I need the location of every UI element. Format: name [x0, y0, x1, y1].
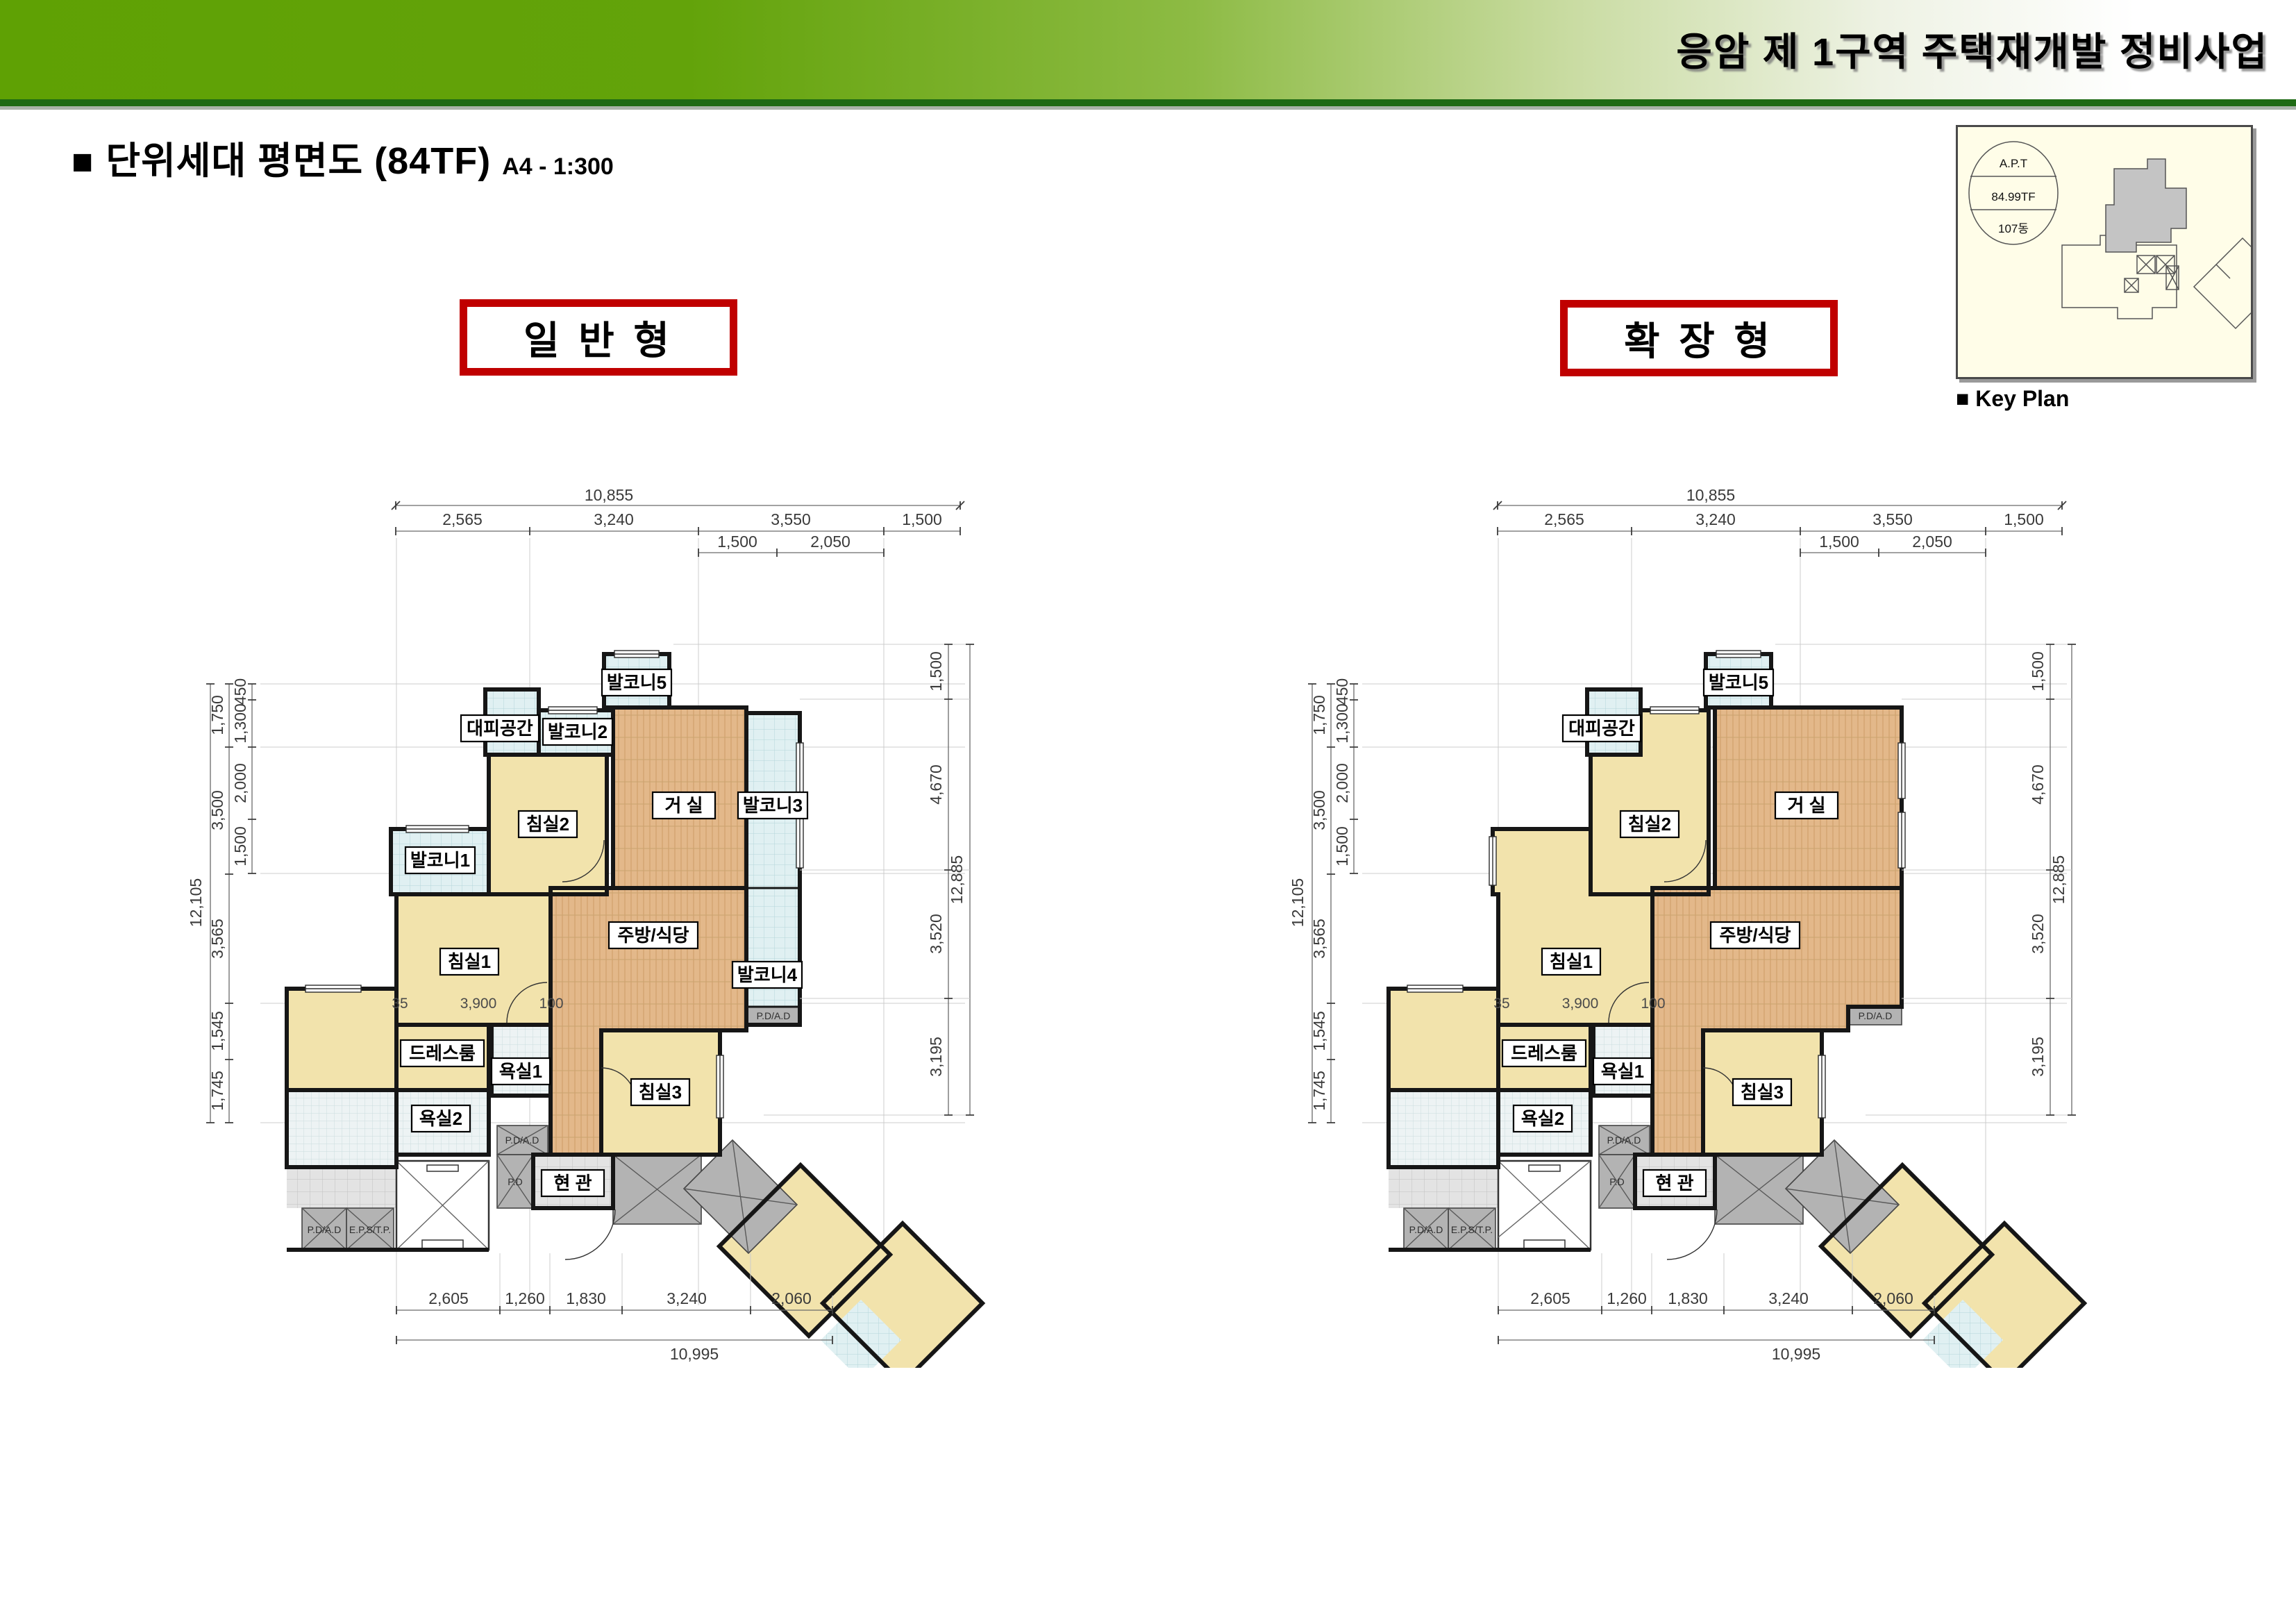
svg-text:1,260: 1,260	[1607, 1289, 1647, 1307]
key-plan-building-footprint	[2062, 159, 2251, 328]
svg-text:10,995: 10,995	[1772, 1345, 1820, 1363]
label-entry: 현 관	[1643, 1170, 1706, 1196]
type-label-extended: 확 장 형	[1560, 300, 1838, 376]
svg-text:3,520: 3,520	[2029, 914, 2047, 954]
svg-text:주방/식당: 주방/식당	[1720, 925, 1791, 946]
svg-text:1,260: 1,260	[505, 1289, 545, 1307]
room-fills	[1389, 654, 2084, 1368]
svg-text:E.P.S/T.P.: E.P.S/T.P.	[349, 1224, 391, 1235]
svg-text:1,300: 1,300	[1333, 703, 1351, 744]
type-label-standard: 일 반 형	[460, 299, 737, 376]
dimension-left: 12,105 1,750 3,500 3,565 1,545 1,745 450…	[187, 678, 256, 1123]
svg-text:10,855: 10,855	[585, 486, 633, 504]
label-living: 거 실	[653, 792, 715, 819]
svg-text:침실2: 침실2	[1628, 814, 1671, 835]
label-dress: 드레스룸	[1502, 1040, 1586, 1066]
svg-text:3,500: 3,500	[208, 790, 226, 830]
svg-text:3,550: 3,550	[1872, 510, 1913, 528]
svg-text:드레스룸: 드레스룸	[409, 1043, 476, 1064]
svg-text:1,500: 1,500	[2004, 510, 2044, 528]
svg-text:1,830: 1,830	[566, 1289, 606, 1307]
svg-text:3,240: 3,240	[594, 510, 634, 528]
svg-text:4,670: 4,670	[2029, 764, 2047, 805]
svg-text:P.D/A.D: P.D/A.D	[757, 1010, 791, 1021]
svg-text:35: 35	[1493, 996, 1509, 1012]
svg-text:3,900: 3,900	[1562, 996, 1599, 1012]
page-title: ■ 단위세대 평면도 (84TF) A4 - 1:300	[72, 142, 614, 180]
svg-text:3,565: 3,565	[1310, 919, 1328, 959]
svg-text:3,240: 3,240	[667, 1289, 707, 1307]
page-title-text: 단위세대 평면도 (84TF)	[106, 142, 491, 180]
svg-text:1,830: 1,830	[1668, 1289, 1708, 1307]
label-bath1: 욕실1	[492, 1058, 550, 1085]
svg-text:1,545: 1,545	[208, 1011, 226, 1051]
elevator	[1498, 1161, 1591, 1250]
key-plan-stamp-apt: A.P.T	[2000, 157, 2027, 170]
svg-text:10,855: 10,855	[1686, 486, 1735, 504]
svg-text:1,500: 1,500	[902, 510, 942, 528]
svg-text:E.P.S/T.P.: E.P.S/T.P.	[1451, 1224, 1493, 1235]
key-plan-highlighted-unit	[2106, 159, 2186, 252]
key-plan-stamp-dong: 107동	[1998, 222, 2029, 235]
label-balcony3: 발코니3	[738, 792, 807, 819]
header-underline-shadow	[0, 106, 2296, 110]
label-bed1: 침실1	[1542, 948, 1600, 975]
svg-text:4,670: 4,670	[927, 764, 945, 805]
label-refuge: 대피공간	[1563, 715, 1641, 742]
svg-text:100: 100	[539, 996, 563, 1012]
svg-text:거 실: 거 실	[664, 795, 703, 816]
svg-text:발코니5: 발코니5	[1709, 672, 1768, 693]
svg-text:P.D/A.D: P.D/A.D	[308, 1224, 342, 1235]
svg-text:침실1: 침실1	[448, 951, 491, 972]
svg-text:2,605: 2,605	[1530, 1289, 1570, 1307]
svg-text:2,050: 2,050	[1912, 533, 1952, 551]
svg-text:3,195: 3,195	[2029, 1037, 2047, 1077]
svg-text:P.D/A.D: P.D/A.D	[1859, 1010, 1893, 1021]
svg-text:발코니3: 발코니3	[743, 795, 803, 816]
svg-text:12,885: 12,885	[2050, 855, 2068, 904]
label-bed3: 침실3	[631, 1079, 689, 1105]
label-entry: 현 관	[542, 1170, 604, 1196]
svg-text:3,520: 3,520	[927, 914, 945, 954]
svg-text:P.D/A.D: P.D/A.D	[505, 1135, 539, 1146]
svg-text:3,240: 3,240	[1768, 1289, 1809, 1307]
svg-text:12,105: 12,105	[187, 878, 205, 927]
label-living: 거 실	[1775, 792, 1838, 819]
label-bed2: 침실2	[1620, 811, 1679, 837]
key-plan-stamp-type: 84.99TF	[1991, 190, 2035, 203]
svg-text:2,565: 2,565	[1544, 510, 1584, 528]
svg-text:발코니4: 발코니4	[737, 964, 798, 985]
key-plan-caption: ■ Key Plan	[1956, 386, 2069, 412]
svg-text:욕실1: 욕실1	[499, 1061, 542, 1082]
label-balcony2: 발코니2	[543, 719, 612, 745]
svg-text:1,500: 1,500	[1333, 826, 1351, 867]
svg-text:3,900: 3,900	[460, 996, 497, 1012]
label-dress: 드레스룸	[401, 1040, 484, 1066]
floor-plan-standard: 발코니5 대피공간 발코니2 침실2 거 실 발코니3 발코니1 침실1 주방/…	[97, 479, 1014, 1368]
svg-text:현 관: 현 관	[1655, 1173, 1693, 1194]
svg-text:450: 450	[231, 678, 249, 705]
svg-text:12,885: 12,885	[948, 855, 966, 904]
svg-text:발코니5: 발코니5	[607, 672, 667, 693]
label-bath1: 욕실1	[1593, 1058, 1652, 1085]
svg-text:1,745: 1,745	[208, 1071, 226, 1111]
svg-text:욕실2: 욕실2	[1521, 1108, 1564, 1129]
svg-text:1,300: 1,300	[231, 703, 249, 744]
svg-text:3,565: 3,565	[208, 919, 226, 959]
svg-text:발코니1: 발코니1	[410, 850, 470, 871]
svg-text:P.D: P.D	[508, 1176, 523, 1187]
svg-text:100: 100	[1641, 996, 1665, 1012]
header-underline	[0, 99, 2296, 106]
svg-text:욕실1: 욕실1	[1601, 1061, 1644, 1082]
svg-text:1,500: 1,500	[2029, 651, 2047, 692]
label-bed3: 침실3	[1733, 1079, 1791, 1105]
svg-text:1,500: 1,500	[1819, 533, 1859, 551]
svg-text:발코니2: 발코니2	[548, 721, 607, 742]
svg-text:1,750: 1,750	[208, 695, 226, 735]
svg-text:1,500: 1,500	[927, 651, 945, 692]
label-kitchen: 주방/식당	[609, 922, 698, 948]
svg-text:450: 450	[1333, 678, 1351, 705]
label-bath2: 욕실2	[1514, 1105, 1572, 1132]
svg-text:1,750: 1,750	[1310, 695, 1328, 735]
key-plan-sketch: A.P.T 84.99TF 107동	[1958, 127, 2251, 377]
svg-text:3,240: 3,240	[1695, 510, 1736, 528]
svg-text:침실2: 침실2	[526, 814, 569, 835]
svg-text:35: 35	[392, 996, 408, 1012]
svg-text:3,195: 3,195	[927, 1037, 945, 1077]
svg-text:침실3: 침실3	[639, 1082, 682, 1103]
svg-text:10,995: 10,995	[670, 1345, 719, 1363]
svg-text:대피공간: 대피공간	[1568, 718, 1635, 739]
svg-text:주방/식당: 주방/식당	[618, 925, 689, 946]
label-bed1: 침실1	[440, 948, 498, 975]
svg-text:대피공간: 대피공간	[467, 718, 533, 739]
svg-text:2,000: 2,000	[1333, 763, 1351, 803]
label-bed2: 침실2	[519, 811, 577, 837]
svg-text:현 관: 현 관	[553, 1173, 592, 1194]
page-title-scale: A4 - 1:300	[502, 154, 614, 180]
svg-text:1,500: 1,500	[717, 533, 757, 551]
svg-text:침실3: 침실3	[1741, 1082, 1784, 1103]
label-balcony5: 발코니5	[602, 669, 671, 696]
svg-text:2,605: 2,605	[428, 1289, 469, 1307]
svg-text:1,545: 1,545	[1310, 1011, 1328, 1051]
dimension-left: 12,105 1,750 3,500 3,565 1,545 1,745 450…	[1289, 678, 1358, 1123]
svg-text:거 실: 거 실	[1787, 795, 1825, 816]
svg-text:3,500: 3,500	[1310, 790, 1328, 830]
room-fills	[287, 654, 982, 1368]
svg-text:침실1: 침실1	[1550, 951, 1593, 972]
label-balcony5: 발코니5	[1704, 669, 1773, 696]
svg-text:12,105: 12,105	[1289, 878, 1307, 927]
key-plan-box: A.P.T 84.99TF 107동	[1956, 125, 2253, 379]
label-balcony1: 발코니1	[405, 847, 475, 873]
svg-text:2,060: 2,060	[1873, 1289, 1913, 1307]
svg-text:1,500: 1,500	[231, 826, 249, 867]
svg-text:2,000: 2,000	[231, 763, 249, 803]
label-kitchen: 주방/식당	[1711, 922, 1800, 948]
svg-text:P.D/A.D: P.D/A.D	[1409, 1224, 1443, 1235]
svg-text:P.D: P.D	[1609, 1176, 1625, 1187]
svg-text:2,565: 2,565	[442, 510, 483, 528]
svg-text:1,745: 1,745	[1310, 1071, 1328, 1111]
elevator	[396, 1161, 489, 1250]
label-balcony4: 발코니4	[732, 962, 802, 988]
svg-text:욕실2: 욕실2	[419, 1108, 462, 1129]
svg-text:2,060: 2,060	[771, 1289, 812, 1307]
dimension-top: 10,855 2,565 3,240 3,550 1,500 1,500 2,0…	[392, 486, 964, 557]
title-bullet-icon: ■	[72, 144, 93, 180]
project-title: 응암 제 1구역 주택재개발 정비사업	[1676, 21, 2268, 77]
svg-text:드레스룸: 드레스룸	[1511, 1043, 1577, 1064]
dimension-top: 10,855 2,565 3,240 3,550 1,500 1,500 2,0…	[1493, 486, 2066, 557]
floor-plan-extended: 발코니5 대피공간 침실2 거 실 침실1 주방/식당 드레스룸 욕실1 욕실2…	[1199, 479, 2115, 1368]
svg-text:3,550: 3,550	[771, 510, 811, 528]
svg-text:2,050: 2,050	[810, 533, 850, 551]
label-bath2: 욕실2	[412, 1105, 470, 1132]
label-refuge: 대피공간	[461, 715, 539, 742]
svg-text:P.D/A.D: P.D/A.D	[1607, 1135, 1641, 1146]
